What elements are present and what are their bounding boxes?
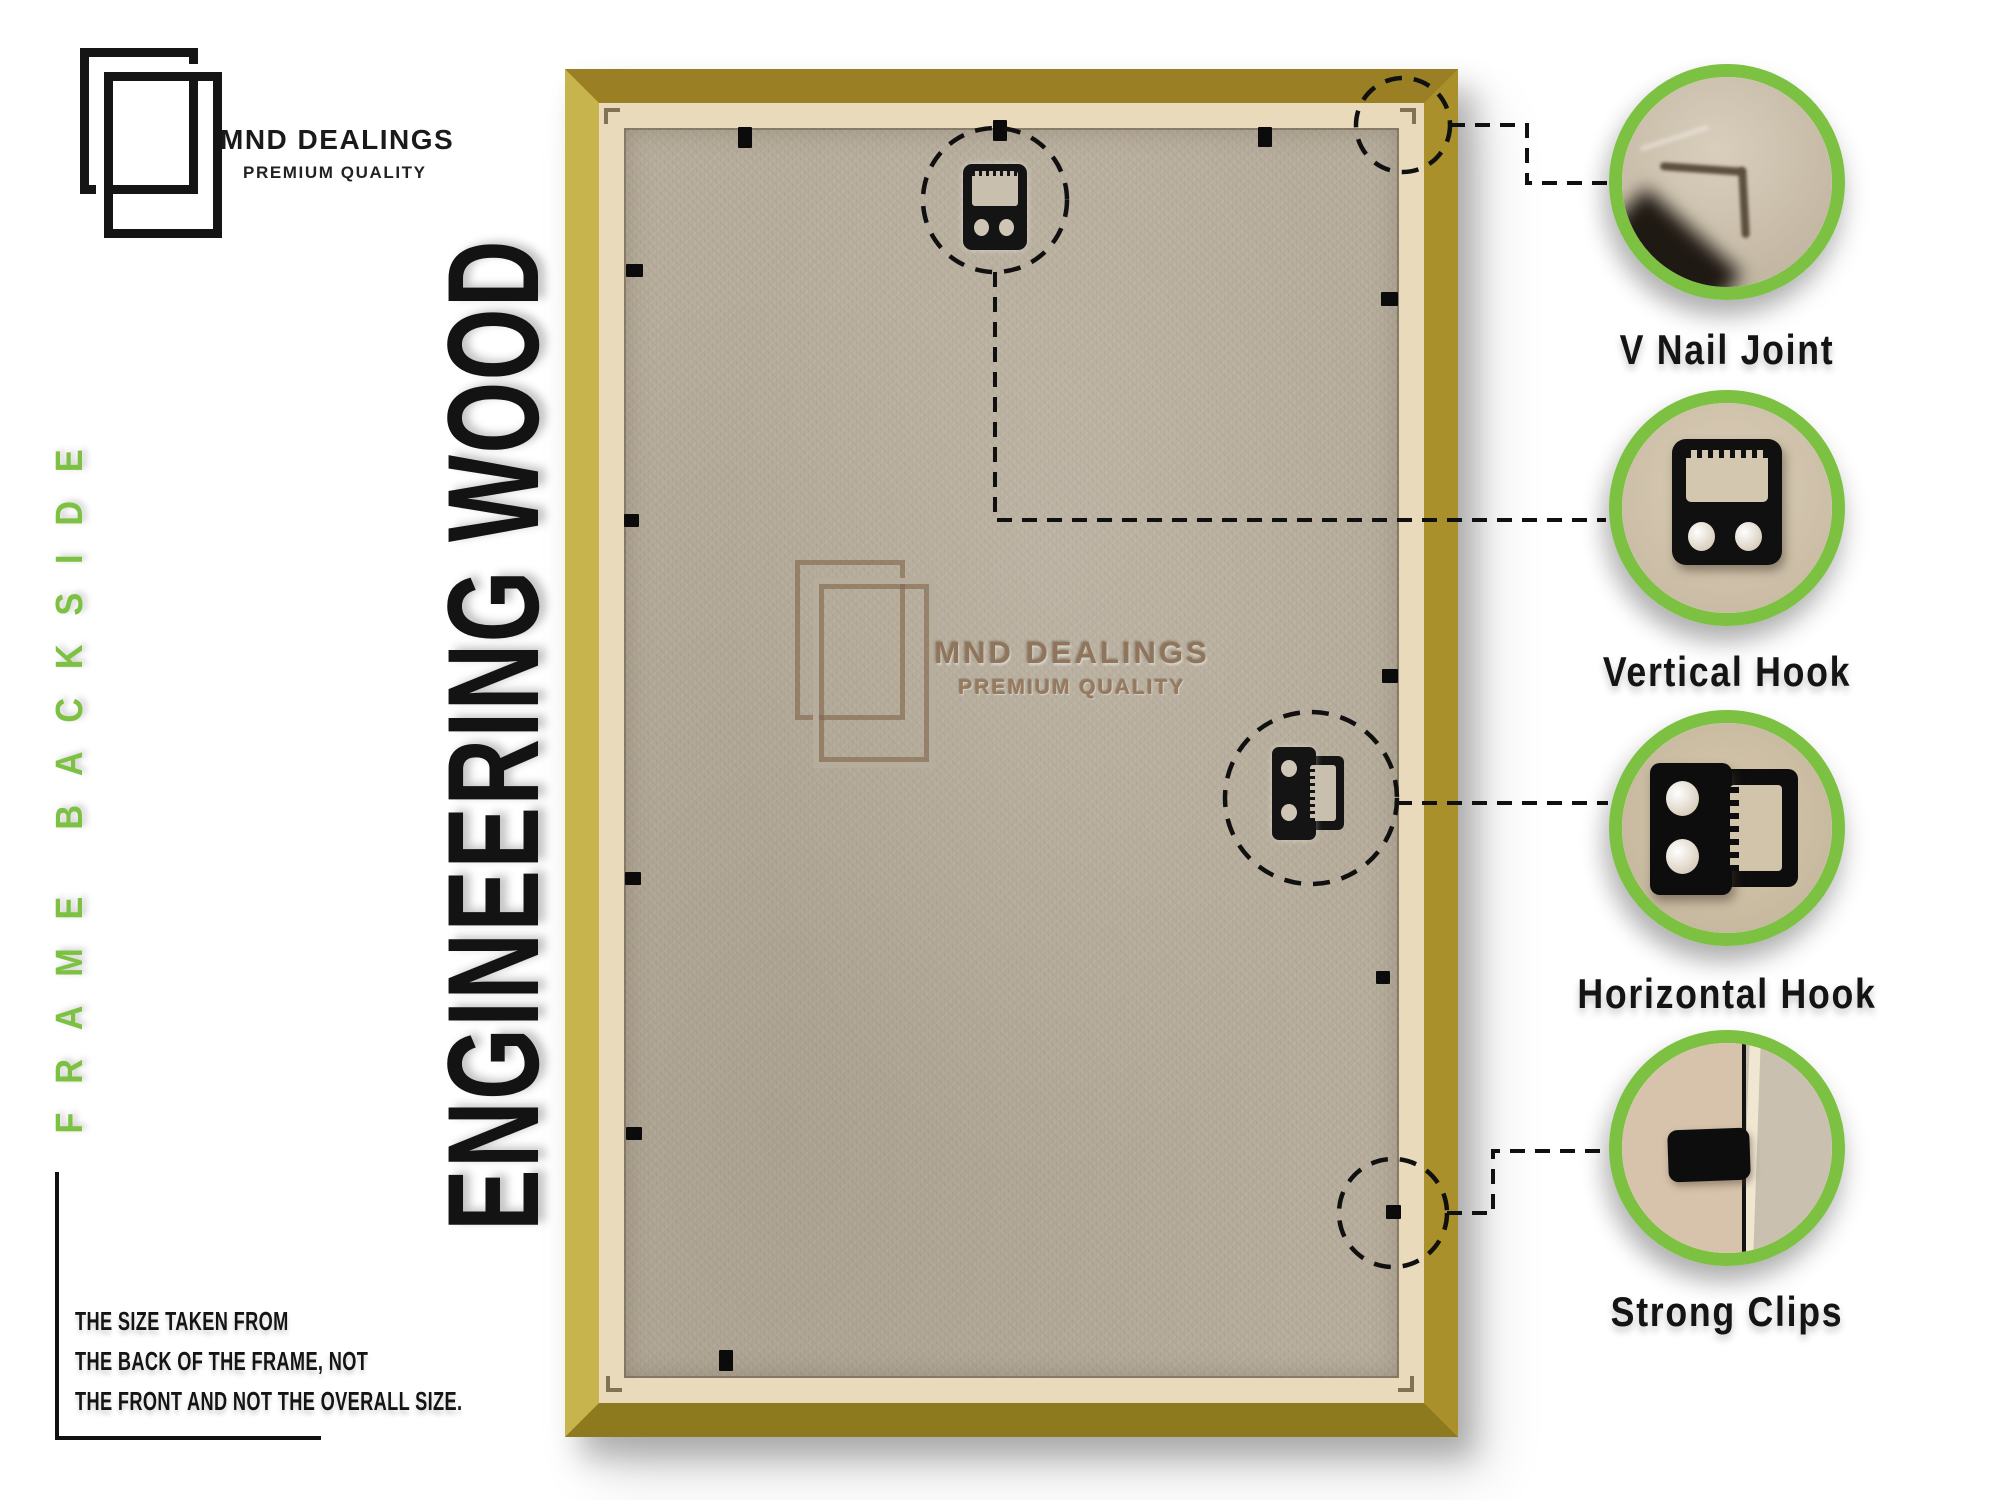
board-clip	[625, 872, 641, 885]
footnote-bracket	[55, 1436, 321, 1440]
callout-horizontal-hook	[1609, 710, 1845, 946]
strong-clip-photo	[1622, 1043, 1832, 1253]
watermark-brand-name: MND DEALINGS	[822, 635, 1322, 671]
corner-shadow	[1609, 188, 1742, 300]
hook-opening	[1686, 450, 1768, 502]
screw-hole	[1688, 522, 1715, 551]
v-nail-groove	[1660, 162, 1744, 176]
callout-label-strong-clips: Strong Clips	[1549, 1288, 1906, 1336]
footnote-line: THE SIZE TAKEN FROM	[75, 1306, 289, 1337]
v-nail-mark	[604, 108, 620, 124]
callout-label-horizontal-hook: Horizontal Hook	[1549, 970, 1906, 1018]
hook-opening	[972, 171, 1018, 206]
board-clip	[1258, 127, 1272, 147]
footnote-bracket	[55, 1172, 59, 1438]
vertical-hook-hardware	[963, 164, 1027, 250]
screw-hole	[999, 219, 1014, 236]
hook-opening	[1730, 785, 1782, 871]
callout-v-nail-joint	[1609, 64, 1845, 300]
board-clip	[1381, 292, 1398, 306]
frame-backside-infographic: MND DEALINGS PREMIUM QUALITY FRAME BACKS…	[0, 0, 2000, 1500]
wood-crack	[1640, 125, 1709, 151]
v-nail-mark	[1398, 1376, 1414, 1392]
callout-label-vertical-hook: Vertical Hook	[1549, 648, 1906, 696]
v-nail-corner-photo	[1622, 77, 1832, 287]
v-nail-mark	[1400, 108, 1416, 124]
screw-hole	[1735, 522, 1762, 551]
footnote-line: THE BACK OF THE FRAME, NOT	[75, 1346, 368, 1377]
board-clip	[626, 1127, 642, 1140]
board-clip	[1386, 1205, 1401, 1219]
hook-opening	[1310, 765, 1336, 821]
callout-label-v-nail-joint: V Nail Joint	[1549, 326, 1906, 374]
screw-hole	[974, 219, 989, 236]
hook-body	[1672, 439, 1782, 565]
clip-body	[1667, 1128, 1751, 1183]
screw-hole	[1666, 781, 1699, 816]
callout-vertical-hook	[1609, 390, 1845, 626]
watermark-logo-icon	[819, 584, 929, 762]
vertical-hook-photo	[1622, 403, 1832, 613]
board-clip	[993, 120, 1007, 141]
screw-hole	[1666, 839, 1699, 874]
board-clip	[1376, 971, 1390, 984]
board-clip	[626, 264, 643, 277]
v-nail-mark	[606, 1376, 622, 1392]
footnote-line: THE FRONT AND NOT THE OVERALL SIZE.	[75, 1386, 462, 1417]
screw-hole	[1281, 760, 1297, 777]
horizontal-hook-hardware	[1272, 747, 1346, 840]
callout-strong-clips	[1609, 1030, 1845, 1266]
board-clip	[624, 514, 639, 527]
screw-hole	[1281, 804, 1297, 821]
watermark-brand-tagline: PREMIUM QUALITY	[822, 676, 1322, 700]
board-clip	[738, 127, 752, 148]
horizontal-hook-photo	[1622, 723, 1832, 933]
board-clip	[1382, 669, 1398, 683]
board-clip	[719, 1350, 733, 1371]
v-nail-groove	[1738, 167, 1750, 239]
